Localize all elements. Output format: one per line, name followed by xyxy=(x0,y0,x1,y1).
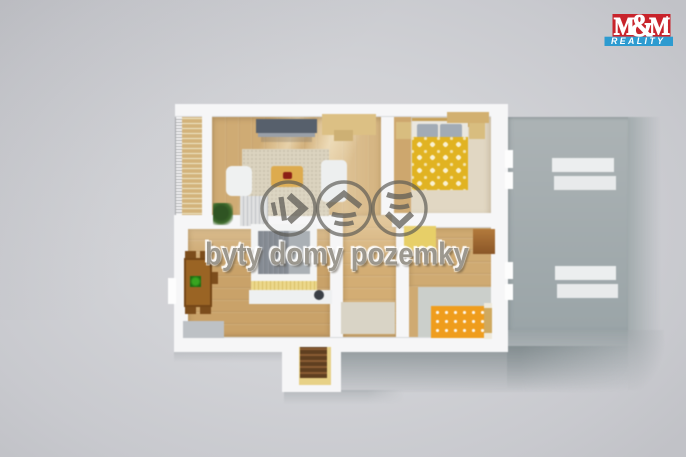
svg-text:REALITY: REALITY xyxy=(611,36,665,46)
